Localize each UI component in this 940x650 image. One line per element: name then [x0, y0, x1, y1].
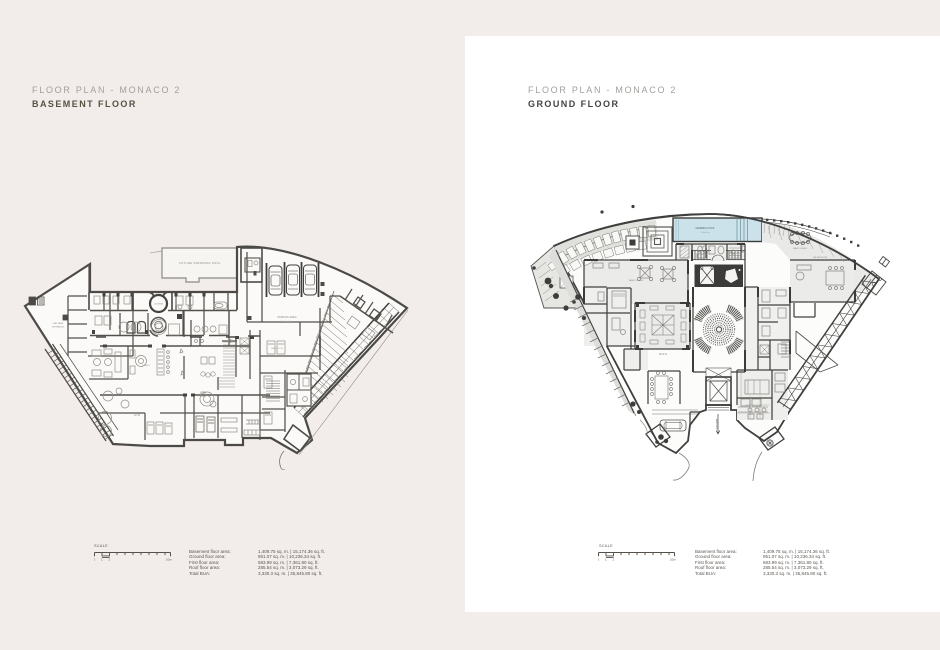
svg-text:FAMILY DINING: FAMILY DINING [793, 247, 807, 250]
svg-text:CAR PARK: CAR PARK [52, 322, 64, 325]
svg-text:1: 1 [101, 557, 103, 561]
svg-text:1: 1 [605, 557, 607, 561]
svg-text:MAIN GATE: MAIN GATE [715, 419, 718, 430]
svg-text:GYM: GYM [134, 413, 140, 417]
svg-text:0: 0 [598, 557, 600, 561]
svg-text:FUTURE SWIMMING POOL: FUTURE SWIMMING POOL [179, 261, 221, 265]
svg-text:HIS BEDROOM: HIS BEDROOM [813, 257, 828, 259]
svg-text:MAID ROOM: MAID ROOM [271, 347, 283, 350]
svg-text:FAMILY LIVING: FAMILY LIVING [629, 279, 644, 282]
svg-text:GAMES: GAMES [142, 364, 150, 367]
svg-text:LOUNGE: LOUNGE [154, 304, 164, 306]
svg-text:10m: 10m [670, 557, 676, 561]
svg-text:MAJLIS: MAJLIS [659, 353, 668, 356]
svg-text:15.0x5.0 m: 15.0x5.0 m [701, 232, 710, 234]
svg-text:0: 0 [94, 557, 96, 561]
svg-text:36.0x14.6 m: 36.0x14.6 m [281, 321, 292, 323]
svg-text:2: 2 [613, 557, 615, 561]
svg-text:PARKING AREA: PARKING AREA [277, 315, 296, 319]
svg-text:10m: 10m [166, 557, 172, 561]
svg-text:SWIMMING POOL: SWIMMING POOL [695, 228, 715, 230]
svg-text:ENTRANCE: ENTRANCE [52, 326, 65, 329]
svg-text:2: 2 [108, 557, 110, 561]
